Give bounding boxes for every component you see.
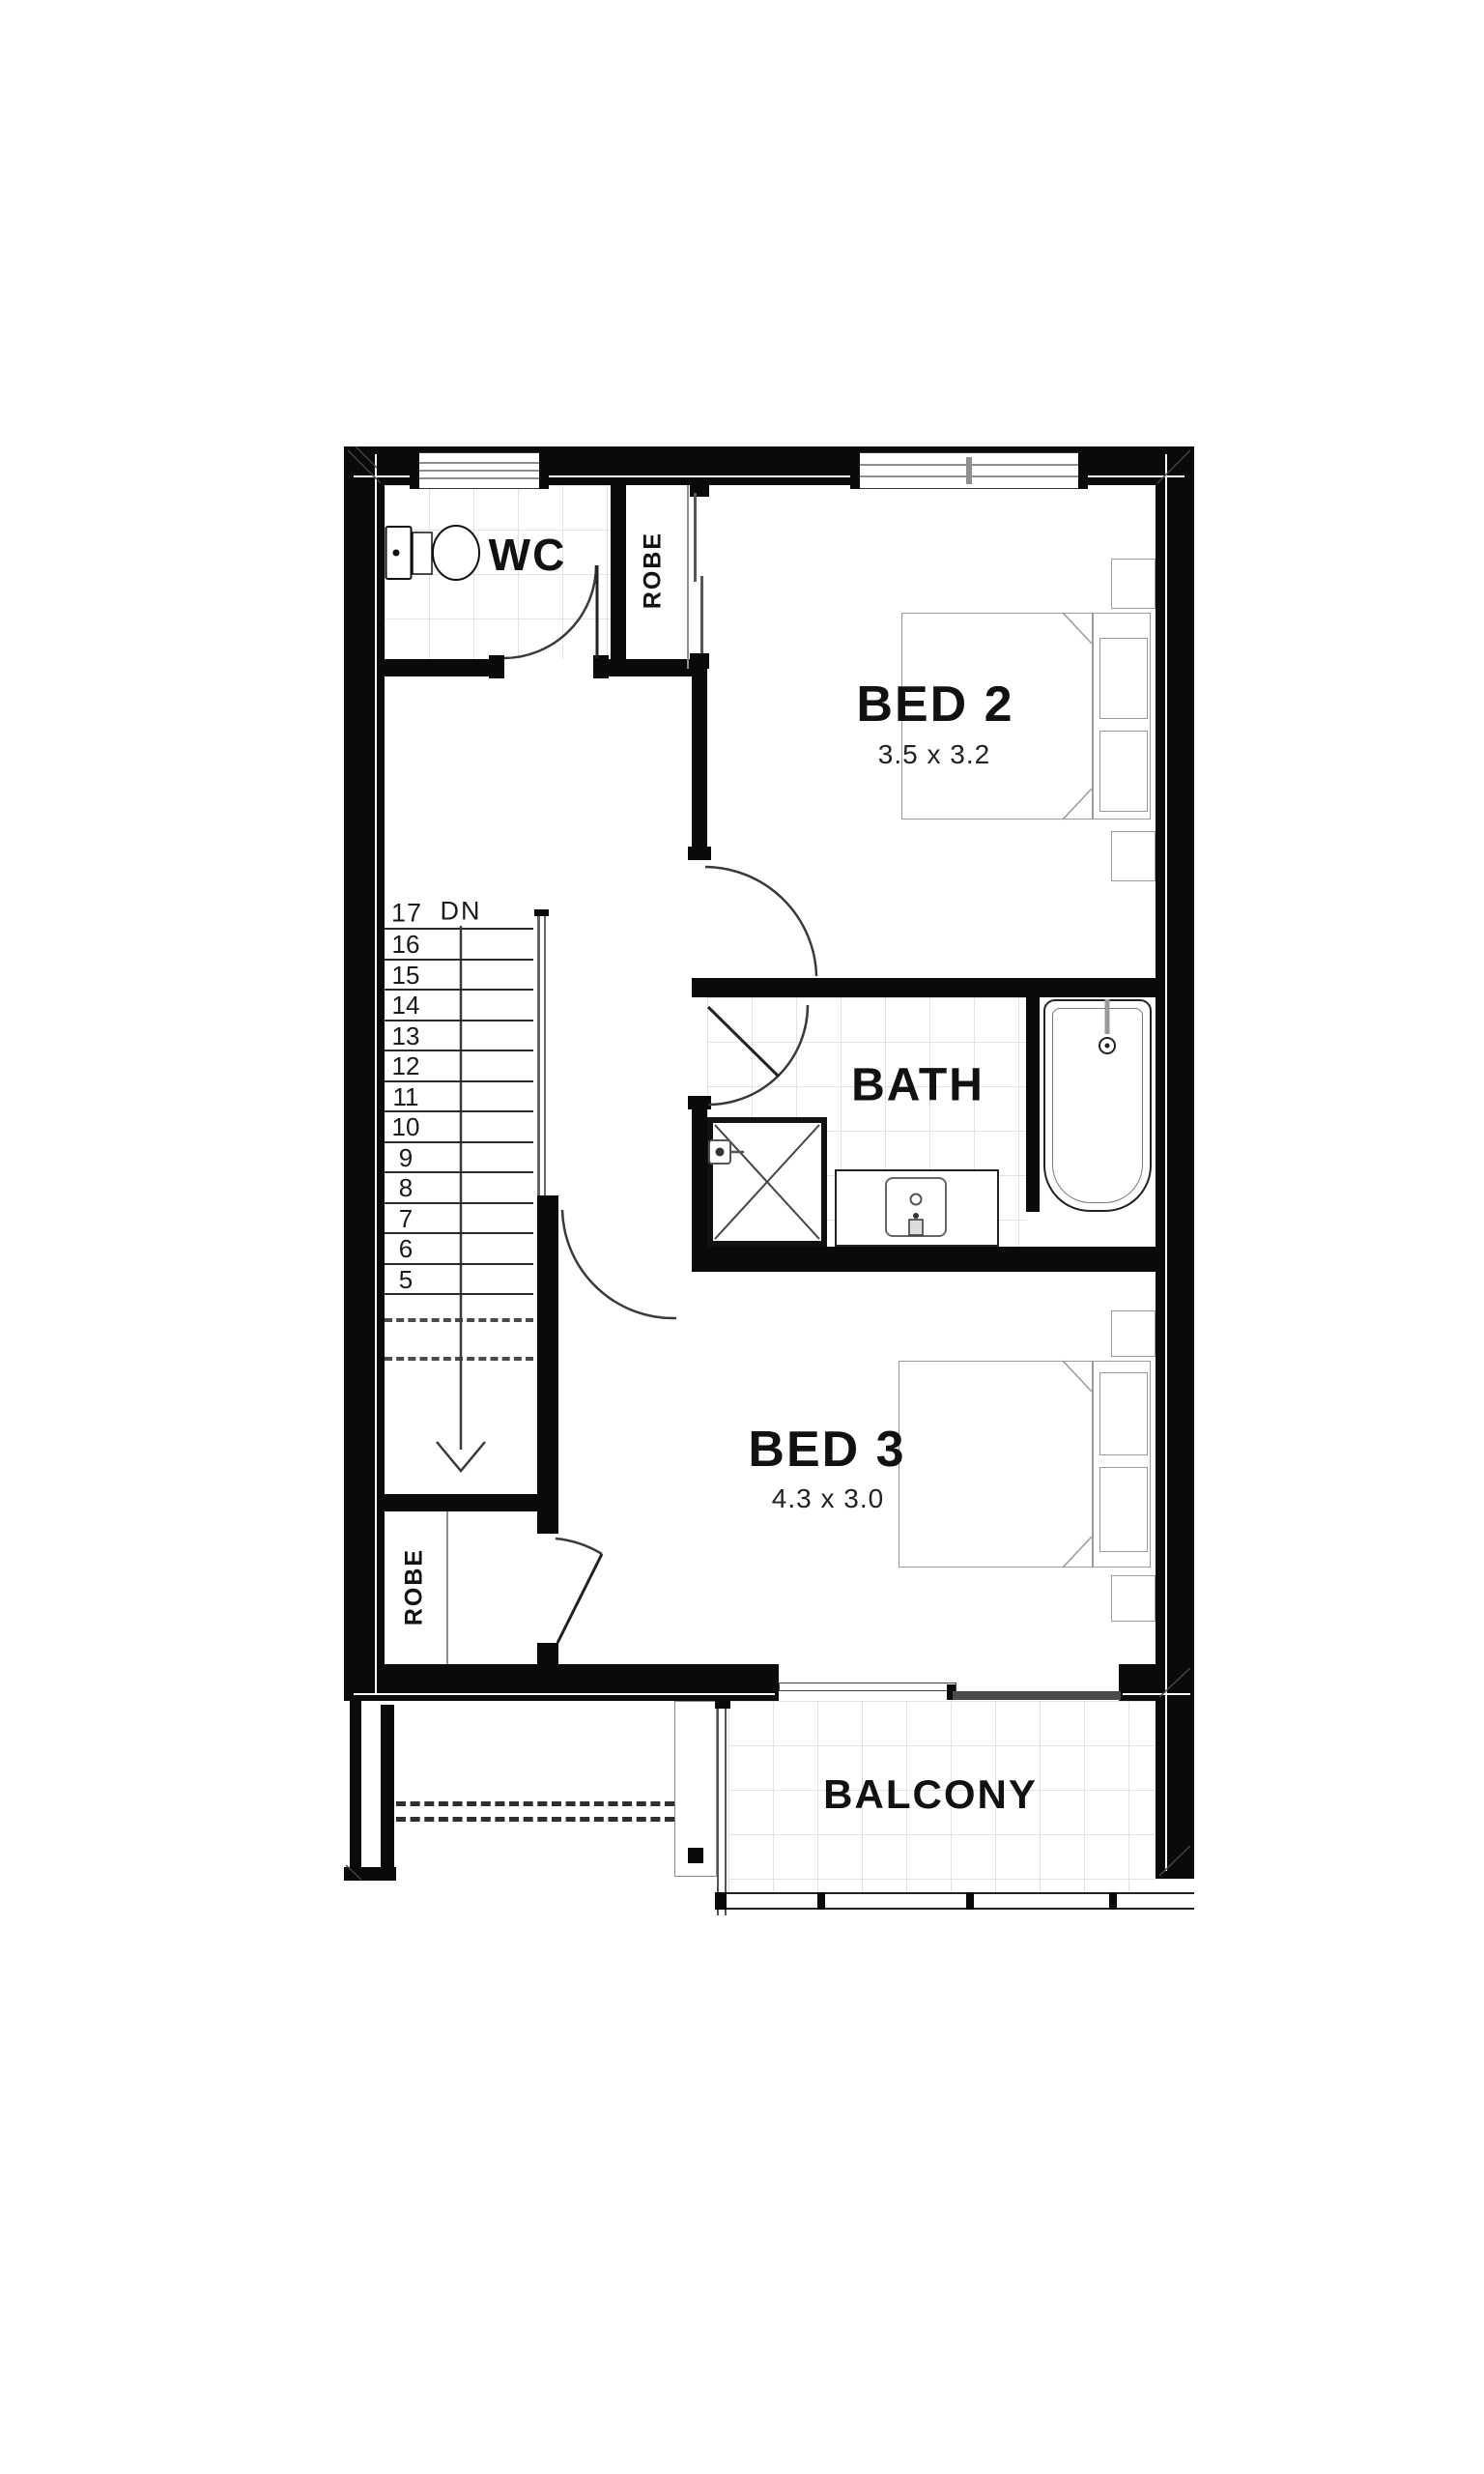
- bed2-window-jamb-left: [850, 452, 860, 489]
- balcony-railing: [715, 1892, 1194, 1910]
- bed2-label: BED 2: [856, 676, 1013, 734]
- floor-plan-page: 17 DN: [0, 0, 1484, 2474]
- wc-wall-bottom-a: [385, 659, 489, 676]
- stair-step: 6: [385, 1234, 533, 1265]
- robe-front-line: [687, 485, 689, 669]
- bed3-sheet-line: [1092, 1361, 1094, 1568]
- bed2-window-jamb-right: [1078, 452, 1088, 489]
- hall-bed2-wall: [692, 667, 707, 858]
- robe-upper-label: ROBE: [640, 532, 668, 609]
- stair-step: 14: [385, 991, 533, 1021]
- exterior-wall-left: [344, 485, 385, 1701]
- balcony-label: BALCONY: [823, 1771, 1038, 1818]
- bed2-nightstand-bottom: [1111, 831, 1156, 881]
- stair-direction-label: DN: [441, 897, 482, 927]
- robe-slider-cap-top: [690, 485, 709, 497]
- balcony-railing-post-3: [1109, 1892, 1117, 1910]
- robe-lower-door-leaf: [557, 1554, 602, 1643]
- bed3-nightstand-top: [1111, 1310, 1156, 1357]
- balcony-slider-panel-outer: [779, 1683, 956, 1691]
- bed3-pillow-2: [1099, 1467, 1148, 1552]
- vanity-basin: [885, 1177, 947, 1237]
- wc-window: [410, 452, 549, 489]
- bed3-nightstand-bottom: [1111, 1575, 1156, 1622]
- balcony-wall-line-b: [725, 1709, 727, 1915]
- stair-step-number: 5: [385, 1265, 427, 1294]
- stair-step-number: 7: [385, 1204, 427, 1233]
- stair-step: 13: [385, 1021, 533, 1052]
- stair-step-number: 11: [385, 1082, 427, 1111]
- stair-step: 7: [385, 1204, 533, 1235]
- wc-robe-wall: [611, 485, 626, 659]
- bed3-pillow-1: [1099, 1372, 1148, 1455]
- stair-break-line-b: [385, 1357, 533, 1361]
- wc-window-jamb-right: [539, 452, 549, 489]
- robe-lower-door-arc: [556, 1539, 602, 1554]
- wall-inner-line-right: [1165, 454, 1167, 1871]
- bed3-label: BED 3: [748, 1421, 905, 1479]
- stair-step-number: 13: [385, 1021, 427, 1050]
- wc-label: WC: [489, 529, 567, 581]
- bed2-dimensions: 3.5 x 3.2: [878, 739, 990, 770]
- stair-step-number: 12: [385, 1051, 427, 1080]
- bath-wall-left: [692, 1108, 707, 1247]
- exterior-wall-bottom-right: [1119, 1664, 1194, 1701]
- stair-step: 8: [385, 1173, 533, 1204]
- stair-step-number: 6: [385, 1234, 427, 1263]
- wall-inner-line-bottom-right: [1123, 1693, 1190, 1695]
- robe-lower-shelf-line: [446, 1511, 448, 1664]
- bed2-pillow-2: [1099, 731, 1148, 812]
- bed2-nightstand-top: [1111, 559, 1156, 609]
- bed2-door-jamb: [688, 847, 711, 860]
- stair-step: 9: [385, 1143, 533, 1174]
- balcony-railing-post-2: [966, 1892, 974, 1910]
- stair-handrail-a: [537, 914, 540, 1195]
- bed3-door-arc: [562, 1210, 676, 1318]
- stair-step-number: 9: [385, 1143, 427, 1172]
- robe-lower-label: ROBE: [401, 1548, 429, 1625]
- stair-step: 16: [385, 930, 533, 961]
- wc-door-jamb-right: [593, 655, 609, 678]
- balcony-wall-line-a: [717, 1709, 719, 1915]
- bed2-door-arc: [705, 867, 816, 976]
- lower-structure-base: [344, 1867, 396, 1881]
- stair-step: 12: [385, 1051, 533, 1082]
- eave-dashed-line-a: [396, 1801, 674, 1806]
- balcony-railing-post-1: [817, 1892, 825, 1910]
- robe-slider-panel-a: [694, 493, 697, 582]
- bath-wall-top: [692, 978, 1156, 997]
- balcony-pier-post: [688, 1848, 703, 1863]
- wall-inner-line-left: [375, 454, 377, 1693]
- balcony-railing-cap: [715, 1892, 727, 1910]
- stair-side-wall: [537, 1195, 558, 1534]
- lower-structure-post-a: [350, 1701, 361, 1879]
- bed2-sheet-line: [1092, 613, 1094, 820]
- bath-wall-bottom: [692, 1247, 1156, 1272]
- stair-step: 10: [385, 1112, 533, 1143]
- stair-break-line-a: [385, 1318, 533, 1322]
- eave-dashed-line-b: [396, 1817, 674, 1822]
- stair-handrail-cap: [534, 909, 549, 916]
- lower-structure-post-b: [381, 1705, 394, 1867]
- stair-step-number: 16: [385, 930, 427, 959]
- tub-niche-wall: [1026, 997, 1040, 1212]
- balcony-slider-panel-inner: [953, 1691, 1121, 1700]
- bed2-window: [850, 452, 1088, 489]
- stair-top-step-label: 17: [391, 899, 422, 929]
- stair-step: 5: [385, 1265, 533, 1296]
- balcony-wall-cap: [715, 1697, 730, 1709]
- robe-lower-top-wall: [385, 1494, 558, 1511]
- bathtub-inner: [1052, 1008, 1143, 1203]
- stair-handrail-b: [544, 914, 547, 1195]
- bath-label: BATH: [851, 1059, 985, 1112]
- wc-window-jamb-left: [410, 452, 419, 489]
- shower: [707, 1117, 827, 1247]
- stair-arrow-head: [437, 1442, 485, 1471]
- bed3-dimensions: 4.3 x 3.0: [772, 1483, 884, 1514]
- stair-step-number: 8: [385, 1173, 427, 1202]
- stair-step: 11: [385, 1082, 533, 1113]
- wc-door-jamb-left: [489, 655, 504, 678]
- stair-step-number: 14: [385, 991, 427, 1020]
- robe-lower-door-jamb: [537, 1643, 558, 1664]
- stair-step-number: 15: [385, 961, 427, 990]
- wall-inner-line-bottom: [354, 1693, 775, 1695]
- robe-slider-panel-b: [700, 576, 703, 661]
- stair-step: 15: [385, 961, 533, 992]
- exterior-wall-bottom-left: [344, 1664, 779, 1701]
- stair-step-number: 10: [385, 1112, 427, 1141]
- bed2-pillow-1: [1099, 638, 1148, 719]
